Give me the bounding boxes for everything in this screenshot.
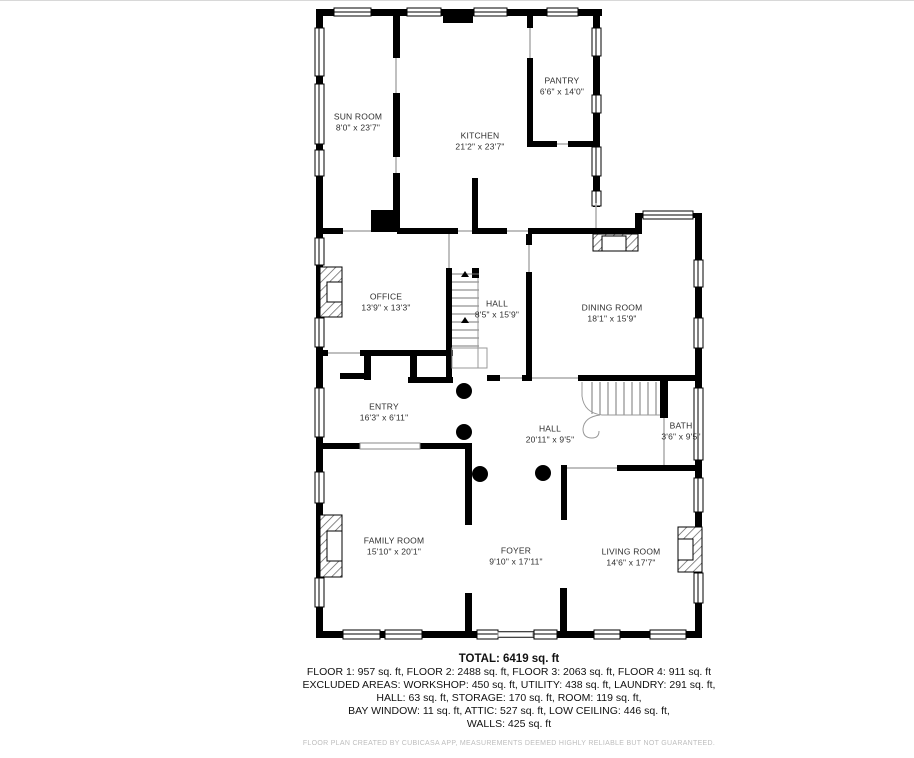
room-label-office: OFFICE 13'9" x 13'3" [361, 292, 410, 313]
room-dims: 3'6" x 9'5" [661, 431, 700, 442]
room-dims: 16'3" x 6'11" [360, 412, 409, 423]
room-dims: 14'6" x 17'7" [602, 557, 661, 568]
excluded-areas-line-2: HALL: 63 sq. ft, STORAGE: 170 sq. ft, RO… [104, 692, 914, 705]
area-summary: TOTAL: 6419 sq. ft FLOOR 1: 957 sq. ft, … [104, 652, 914, 731]
room-label-sun-room: SUN ROOM 8'0" x 23'7" [334, 112, 382, 133]
room-name: BATH [661, 421, 700, 432]
fireplace-icon [593, 234, 638, 251]
room-name: FAMILY ROOM [364, 536, 424, 547]
room-name: FOYER [489, 546, 543, 557]
fireplace-icon [320, 267, 342, 317]
room-name: HALL [526, 424, 575, 435]
room-name: ENTRY [360, 402, 409, 413]
room-dims: 13'9" x 13'3" [361, 302, 410, 313]
floorplan-drawing [0, 0, 914, 758]
room-dims: 9'10" x 17'11" [489, 556, 543, 567]
room-name: LIVING ROOM [602, 547, 661, 558]
floors-area-line: FLOOR 1: 957 sq. ft, FLOOR 2: 2488 sq. f… [104, 666, 914, 679]
floorplan-page: SUN ROOM 8'0" x 23'7" KITCHEN 21'2" x 23… [0, 0, 914, 758]
staircase-lower-icon [582, 382, 660, 438]
walls-area-line: WALLS: 425 sq. ft [104, 718, 914, 731]
staircase-upper-icon [452, 271, 487, 368]
fireplace-icon [678, 527, 702, 572]
room-label-hall-upper: HALL 8'5" x 15'9" [475, 299, 519, 320]
room-name: SUN ROOM [334, 112, 382, 123]
room-label-foyer: FOYER 9'10" x 17'11" [489, 546, 543, 567]
room-name: KITCHEN [455, 131, 504, 142]
room-name: HALL [475, 299, 519, 310]
room-label-family-room: FAMILY ROOM 15'10" x 20'1" [364, 536, 424, 557]
room-dims: 8'5" x 15'9" [475, 309, 519, 320]
room-dims: 15'10" x 20'1" [364, 546, 424, 557]
room-name: DINING ROOM [582, 303, 643, 314]
room-dims: 18'1" x 15'9" [582, 313, 643, 324]
room-label-bath: BATH 3'6" x 9'5" [661, 421, 700, 442]
room-label-hall-lower: HALL 20'11" x 9'5" [526, 424, 575, 445]
excluded-areas-line-1: EXCLUDED AREAS: WORKSHOP: 450 sq. ft, UT… [104, 679, 914, 692]
room-dims: 8'0" x 23'7" [334, 122, 382, 133]
room-label-dining-room: DINING ROOM 18'1" x 15'9" [582, 303, 643, 324]
room-label-entry: ENTRY 16'3" x 6'11" [360, 402, 409, 423]
room-label-kitchen: KITCHEN 21'2" x 23'7" [455, 131, 504, 152]
chimney-icon [371, 9, 473, 232]
room-label-pantry: PANTRY 6'6" x 14'0" [540, 76, 584, 97]
disclaimer-text: FLOOR PLAN CREATED BY CUBICASA APP, MEAS… [104, 740, 914, 747]
room-name: PANTRY [540, 76, 584, 87]
room-dims: 21'2" x 23'7" [455, 141, 504, 152]
total-area-label: TOTAL: 6419 sq. ft [104, 652, 914, 666]
room-name: OFFICE [361, 292, 410, 303]
room-dims: 20'11" x 9'5" [526, 434, 575, 445]
room-label-living-room: LIVING ROOM 14'6" x 17'7" [602, 547, 661, 568]
excluded-areas-line-3: BAY WINDOW: 11 sq. ft, ATTIC: 527 sq. ft… [104, 705, 914, 718]
room-dims: 6'6" x 14'0" [540, 86, 584, 97]
fireplace-icon [320, 515, 342, 577]
